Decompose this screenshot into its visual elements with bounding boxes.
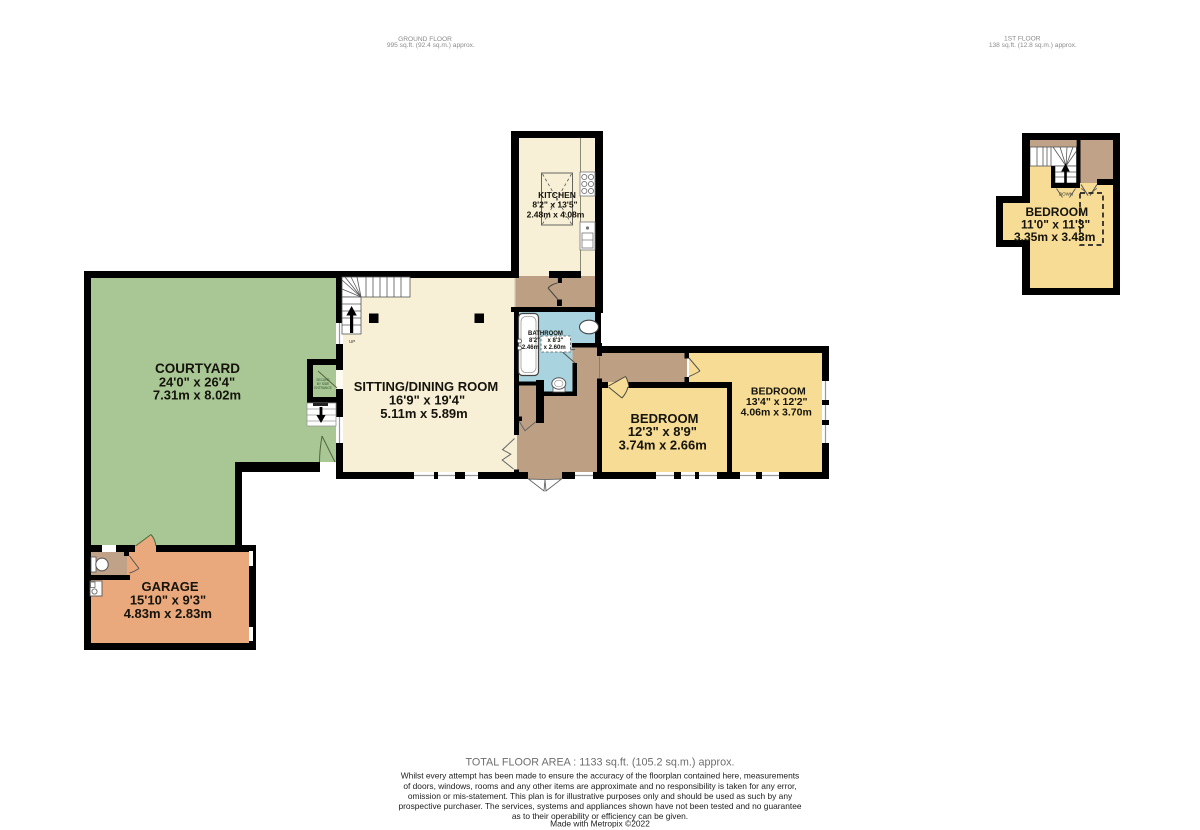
svg-text:5.11m x 5.89m: 5.11m x 5.89m — [380, 406, 467, 421]
svg-text:4.06m x 3.70m: 4.06m x 3.70m — [741, 407, 812, 419]
svg-text:x 2.60m: x 2.60m — [544, 345, 566, 351]
svg-text:ENTRANCE: ENTRANCE — [314, 386, 332, 390]
svg-text:TOTAL FLOOR AREA : 1133 sq.ft.: TOTAL FLOOR AREA : 1133 sq.ft. (105.2 sq… — [465, 757, 734, 769]
svg-text:138 sq.ft. (12.8 sq.m.) approx: 138 sq.ft. (12.8 sq.m.) approx. — [989, 42, 1077, 49]
svg-text:Made with Metropix ©2022: Made with Metropix ©2022 — [550, 819, 650, 829]
svg-text:2.46m: 2.46m — [522, 345, 539, 351]
svg-text:omission or mis-statement. Thi: omission or mis-statement. This plan is … — [408, 791, 793, 801]
svg-text:Whilst every attempt has been: Whilst every attempt has been made to en… — [401, 771, 800, 781]
svg-text:BATHROOM: BATHROOM — [528, 331, 563, 337]
svg-text:8'2" x 13'5": 8'2" x 13'5" — [532, 200, 577, 210]
svg-text:995 sq.ft. (92.4 sq.m.) approx: 995 sq.ft. (92.4 sq.m.) approx. — [387, 42, 475, 49]
svg-text:x 8'3": x 8'3" — [548, 338, 564, 344]
svg-text:KITCHEN: KITCHEN — [538, 190, 576, 200]
svg-text:2.48m x 4.08m: 2.48m x 4.08m — [527, 209, 585, 219]
svg-text:of doors, windows, rooms and a: of doors, windows, rooms and any other i… — [403, 781, 796, 791]
svg-text:4.83m x 2.83m: 4.83m x 2.83m — [124, 606, 212, 621]
svg-text:3.74m x 2.66m: 3.74m x 2.66m — [619, 438, 707, 453]
svg-text:7.31m x 8.02m: 7.31m x 8.02m — [153, 387, 241, 402]
svg-text:UP: UP — [349, 339, 355, 344]
svg-text:3.35m x 3.43m: 3.35m x 3.43m — [1014, 230, 1095, 244]
svg-text:8'2": 8'2" — [529, 338, 540, 344]
svg-text:prospective purchaser. The ser: prospective purchaser. The services, sys… — [398, 801, 801, 811]
